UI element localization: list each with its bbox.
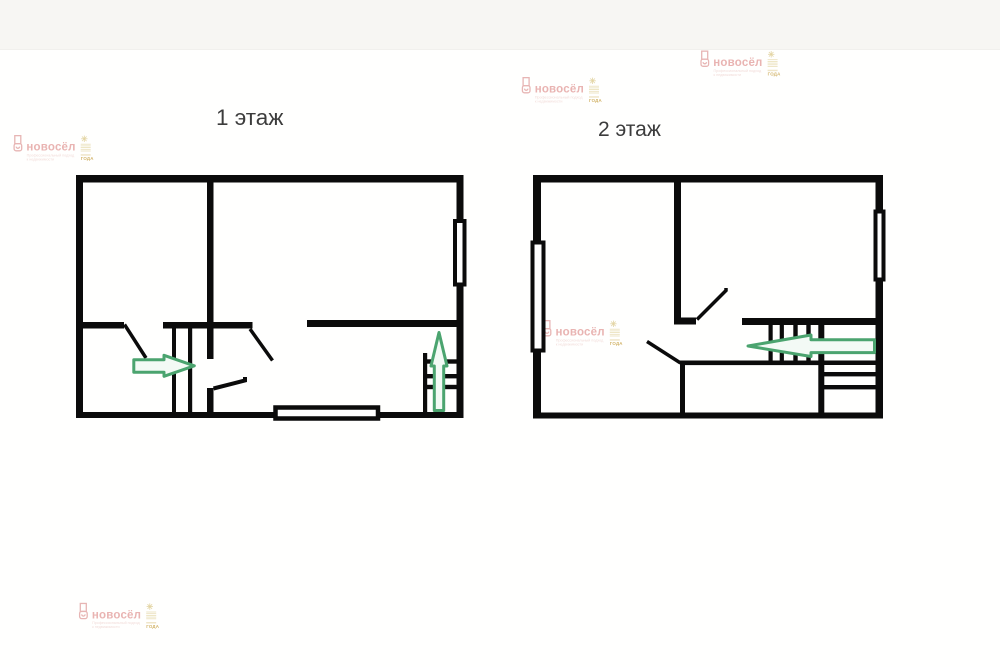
svg-text:к недвижимости: к недвижимости — [714, 73, 742, 77]
svg-text:ГОДА: ГОДА — [589, 98, 603, 103]
svg-text:к недвижимости: к недвижимости — [92, 625, 120, 629]
svg-text:к недвижимости: к недвижимости — [535, 99, 563, 103]
svg-text:ГОДА: ГОДА — [146, 624, 160, 629]
svg-text:к недвижимости: к недвижимости — [27, 157, 55, 161]
svg-text:к недвижимости: к недвижимости — [556, 342, 584, 346]
svg-text:новосёл: новосёл — [556, 327, 605, 339]
svg-text:ГОДА: ГОДА — [768, 72, 782, 77]
svg-text:ГОДА: ГОДА — [81, 156, 95, 161]
svg-text:новосёл: новосёл — [713, 57, 762, 69]
svg-text:ГОДА: ГОДА — [610, 341, 624, 346]
svg-text:новосёл: новосёл — [26, 142, 75, 154]
svg-text:новосёл: новосёл — [92, 610, 141, 622]
svg-text:новосёл: новосёл — [535, 84, 584, 96]
